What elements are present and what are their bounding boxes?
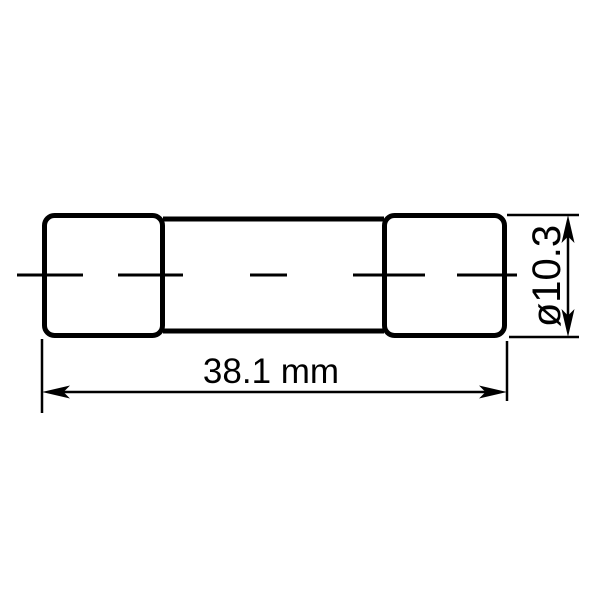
diameter-dimension-label: ø10.3: [525, 225, 569, 327]
drawing-fills: 38.1 mm ø10.3: [42, 215, 575, 399]
technical-drawing-canvas: 38.1 mm ø10.3: [0, 0, 600, 600]
fuse-dimensional-drawing: 38.1 mm ø10.3: [0, 0, 600, 600]
length-dimension-label: 38.1 mm: [203, 352, 339, 391]
